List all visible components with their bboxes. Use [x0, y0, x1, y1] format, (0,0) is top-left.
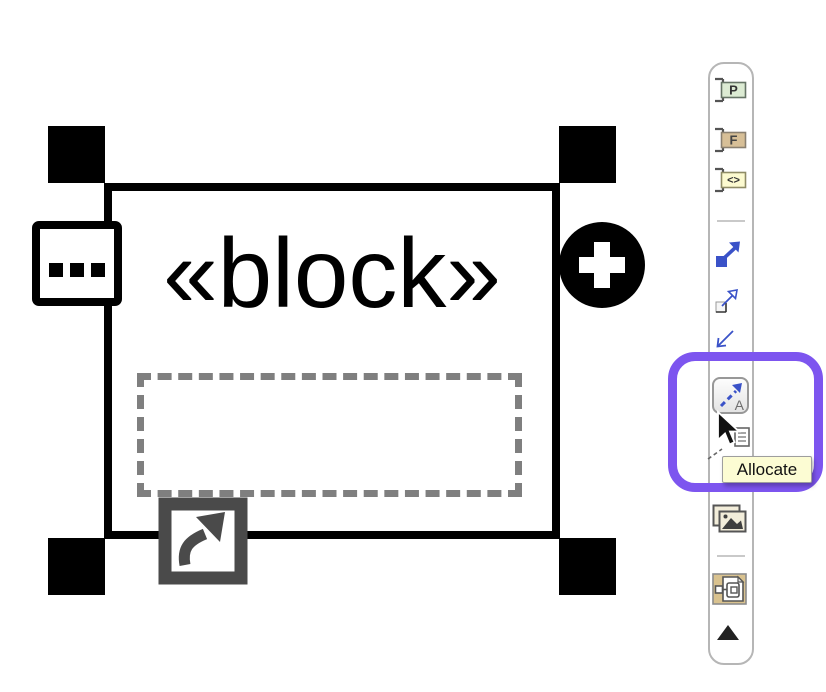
open-arrow-relation-button[interactable]: [713, 286, 741, 319]
ellipsis-icon: [70, 263, 84, 277]
selection-handle-top-right[interactable]: [559, 126, 616, 183]
tooltip-text: Allocate: [737, 460, 797, 480]
open-diagram-button[interactable]: [158, 497, 248, 585]
proxy-port-button[interactable]: <>: [713, 166, 747, 199]
port-label: P: [729, 83, 738, 98]
image-icon: [712, 504, 747, 533]
toolbar-separator: [717, 555, 745, 557]
diagram-canvas: «block» P F: [0, 0, 826, 692]
proxy-port-label: <>: [727, 175, 740, 187]
full-port-button[interactable]: F: [713, 126, 747, 159]
port-button[interactable]: P: [713, 76, 747, 109]
block-stereotype-label: «block»: [112, 224, 552, 322]
open-arrow-icon: [713, 286, 741, 314]
scroll-up-icon: [717, 625, 739, 640]
full-port-label: F: [730, 133, 738, 148]
toolbar-separator: [717, 220, 745, 222]
block-compartment-placeholder: [137, 373, 522, 497]
structure-diagram-button[interactable]: [712, 573, 747, 610]
tooltip: Allocate: [722, 456, 812, 483]
structure-diagram-icon: [712, 573, 747, 605]
filled-arrow-relation-button[interactable]: [714, 240, 742, 273]
selection-handle-top-left[interactable]: [48, 126, 105, 183]
compartments-button[interactable]: [32, 221, 122, 306]
add-element-button[interactable]: [559, 222, 645, 308]
insert-image-button[interactable]: [712, 504, 747, 538]
selection-handle-bottom-left[interactable]: [48, 538, 105, 595]
incoming-arrow-icon: [712, 328, 738, 354]
ellipsis-icon: [91, 263, 105, 277]
filled-arrow-icon: [714, 240, 742, 268]
scroll-up-button[interactable]: [717, 625, 739, 640]
ellipsis-icon: [49, 263, 63, 277]
plus-icon: [594, 242, 610, 288]
mouse-cursor-icon: [714, 410, 742, 457]
selection-handle-bottom-right[interactable]: [559, 538, 616, 595]
navigate-arrow-icon: [158, 497, 248, 585]
